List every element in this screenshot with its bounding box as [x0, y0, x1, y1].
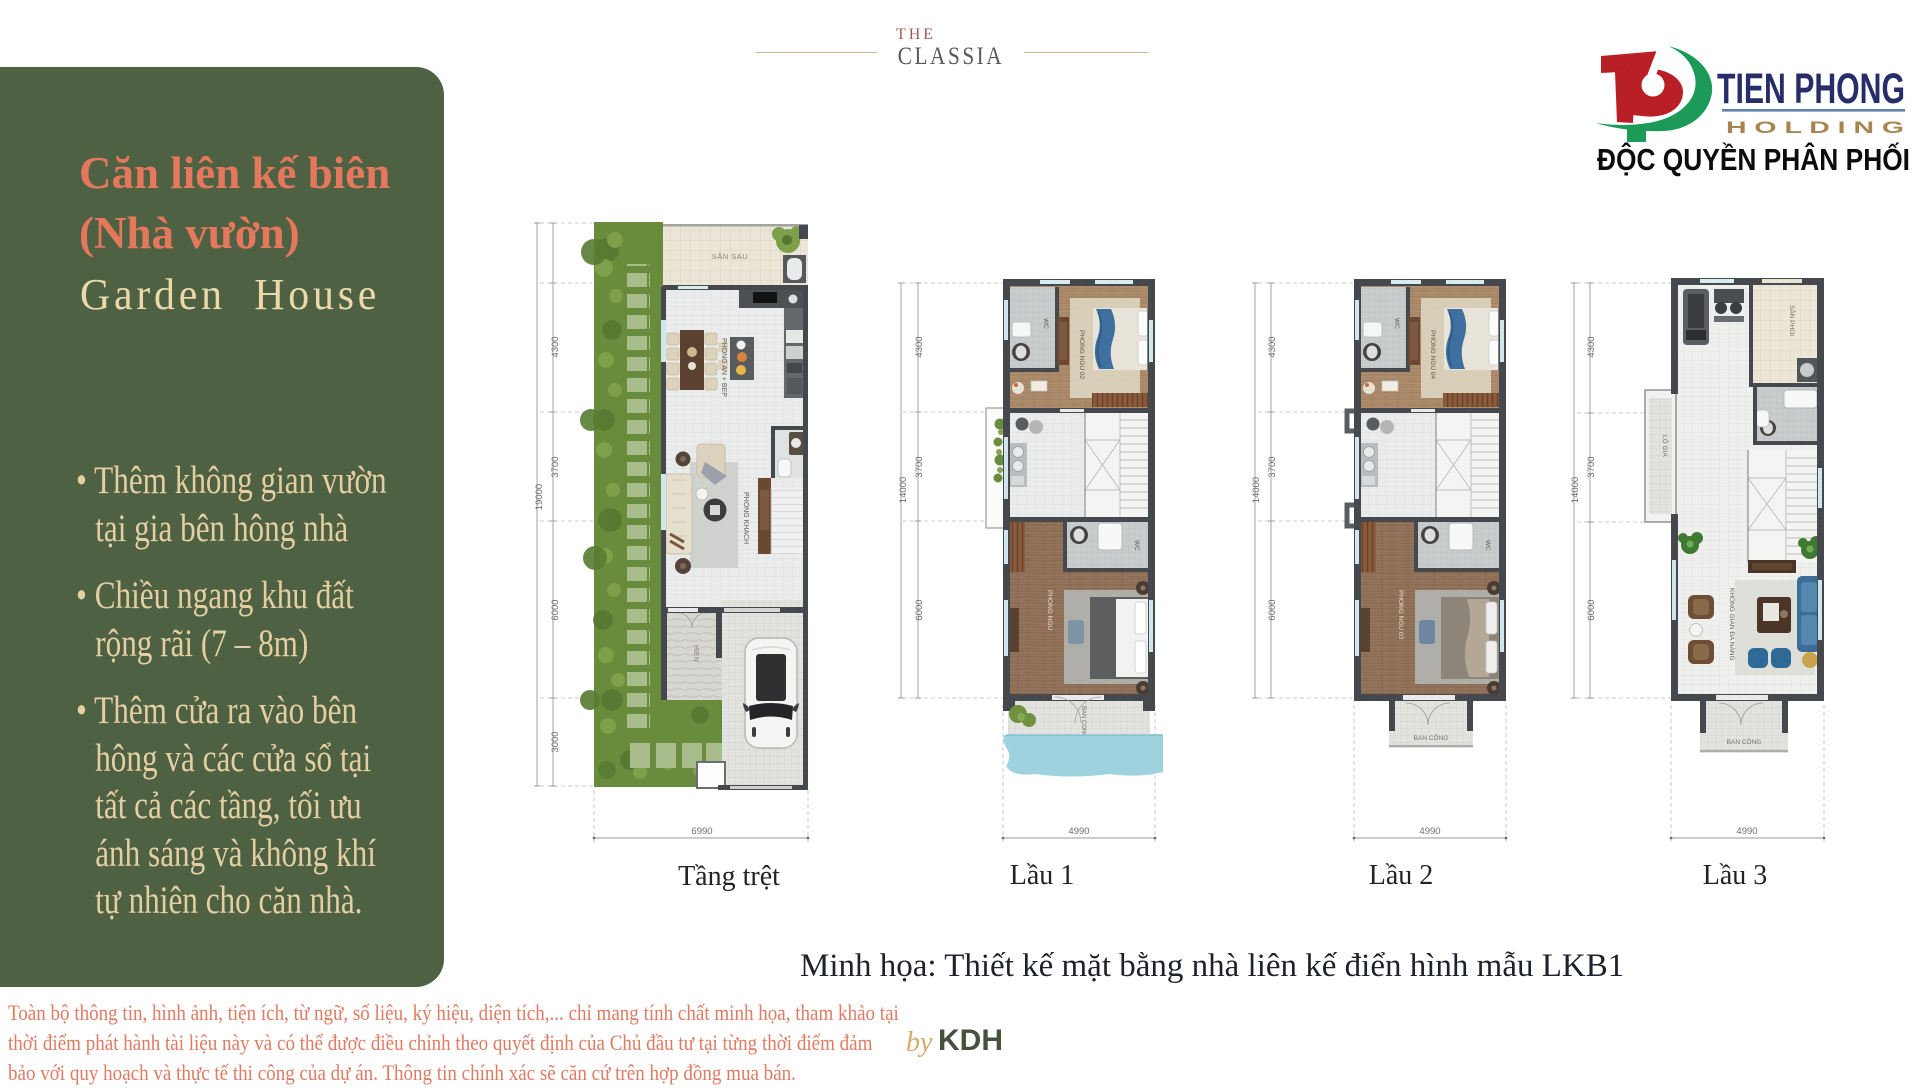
- svg-text:4300: 4300: [550, 336, 561, 357]
- svg-text:WC: WC: [1042, 318, 1049, 329]
- svg-text:BAN CÔNG: BAN CÔNG: [1727, 737, 1762, 746]
- svg-text:3700: 3700: [1586, 456, 1597, 477]
- svg-text:3700: 3700: [1267, 456, 1278, 477]
- svg-text:WC: WC: [1484, 540, 1491, 551]
- svg-text:6000: 6000: [914, 599, 925, 620]
- svg-text:PHONG NGU: PHONG NGU: [1046, 590, 1053, 630]
- svg-text:PHONG KHACH: PHONG KHACH: [742, 492, 749, 544]
- svg-text:14000: 14000: [898, 477, 909, 503]
- svg-text:Lầu 3: Lầu 3: [1703, 860, 1768, 891]
- svg-text:PHONG NGU 04: PHONG NGU 04: [1429, 330, 1436, 380]
- svg-text:PHONG AN + BEP: PHONG AN + BEP: [720, 338, 727, 397]
- svg-text:Lầu 2: Lầu 2: [1369, 860, 1434, 891]
- svg-text:LÔ GIA: LÔ GIA: [1661, 435, 1670, 457]
- svg-text:6990: 6990: [691, 826, 712, 837]
- svg-text:19000: 19000: [534, 484, 545, 510]
- svg-text:Tầng trệt: Tầng trệt: [678, 861, 780, 892]
- svg-text:WC: WC: [1133, 540, 1140, 551]
- svg-text:14000: 14000: [1570, 477, 1581, 503]
- svg-text:PHONG NGU 03: PHONG NGU 03: [1397, 590, 1404, 640]
- svg-text:6000: 6000: [1267, 599, 1278, 620]
- svg-text:14000: 14000: [1251, 477, 1262, 503]
- svg-text:3000: 3000: [550, 731, 561, 752]
- svg-text:4990: 4990: [1419, 826, 1440, 837]
- svg-text:6000: 6000: [550, 599, 561, 620]
- svg-text:4300: 4300: [1267, 336, 1278, 357]
- svg-text:BAN CÔNG: BAN CÔNG: [1414, 733, 1449, 742]
- svg-text:SÂN PHOI: SÂN PHOI: [1788, 305, 1797, 336]
- svg-text:SÂN SAU: SÂN SAU: [712, 252, 748, 261]
- svg-text:WC: WC: [1393, 318, 1400, 329]
- svg-text:3700: 3700: [550, 456, 561, 477]
- svg-text:4990: 4990: [1736, 826, 1757, 837]
- svg-text:4300: 4300: [914, 336, 925, 357]
- svg-text:3700: 3700: [914, 456, 925, 477]
- svg-text:HIEN: HIEN: [692, 645, 699, 662]
- svg-text:4990: 4990: [1068, 826, 1089, 837]
- svg-text:4300: 4300: [1586, 336, 1597, 357]
- svg-text:PHONG NGU 02: PHONG NGU 02: [1078, 330, 1085, 380]
- svg-text:Lầu 1: Lầu 1: [1010, 860, 1075, 891]
- svg-text:6000: 6000: [1586, 599, 1597, 620]
